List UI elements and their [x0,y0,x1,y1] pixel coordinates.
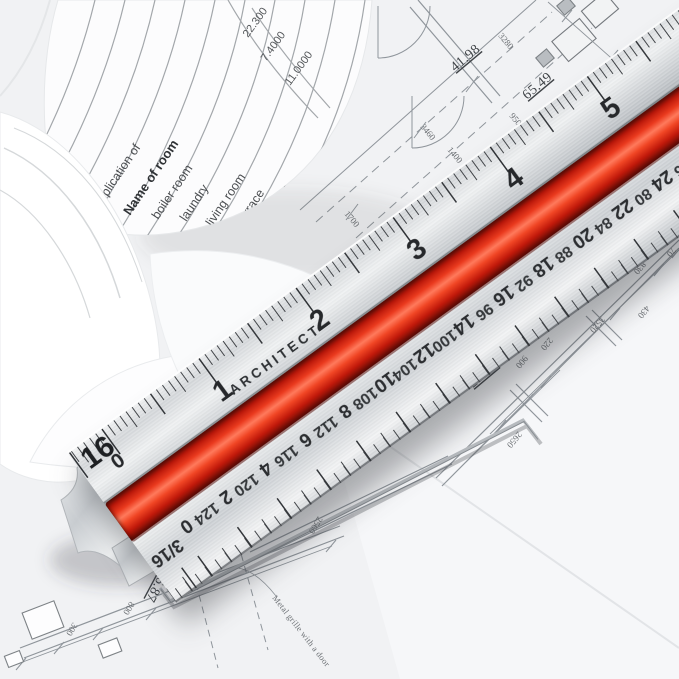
photo-scene: 41.98 65.49 21.20 21.60 6.87 45.22 3280 … [0,0,679,679]
